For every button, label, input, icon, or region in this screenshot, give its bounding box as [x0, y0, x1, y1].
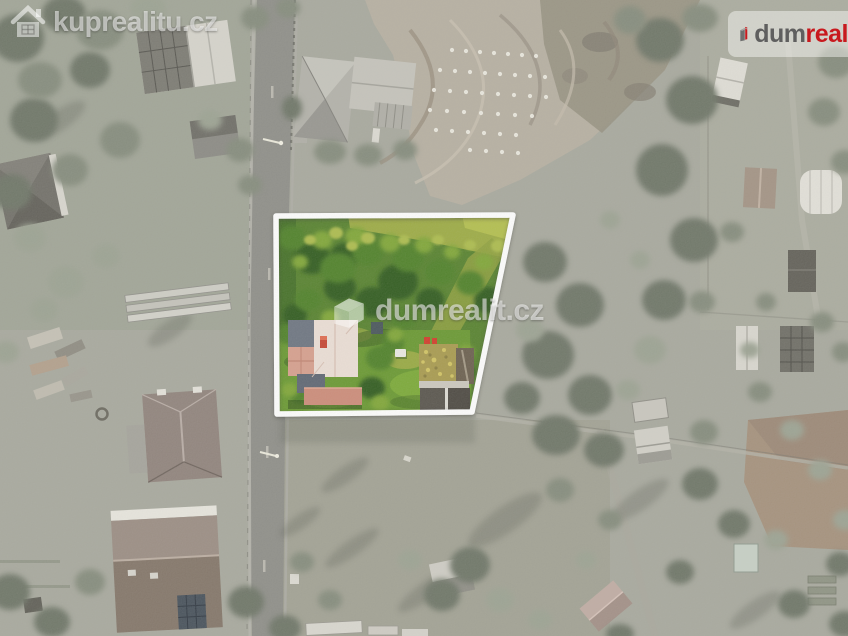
logo-text-real: real	[806, 20, 848, 48]
aerial-photo: kuprealitu.cz dumrealit.cz dumreal	[0, 0, 848, 636]
dumrealit-logo: dumreal	[728, 11, 848, 57]
aerial-scene	[0, 0, 848, 636]
logo-text-dum: dum	[754, 20, 805, 48]
building-i-icon	[740, 11, 748, 57]
logo-text: dumreal	[754, 20, 848, 49]
photo-grain	[0, 0, 848, 636]
